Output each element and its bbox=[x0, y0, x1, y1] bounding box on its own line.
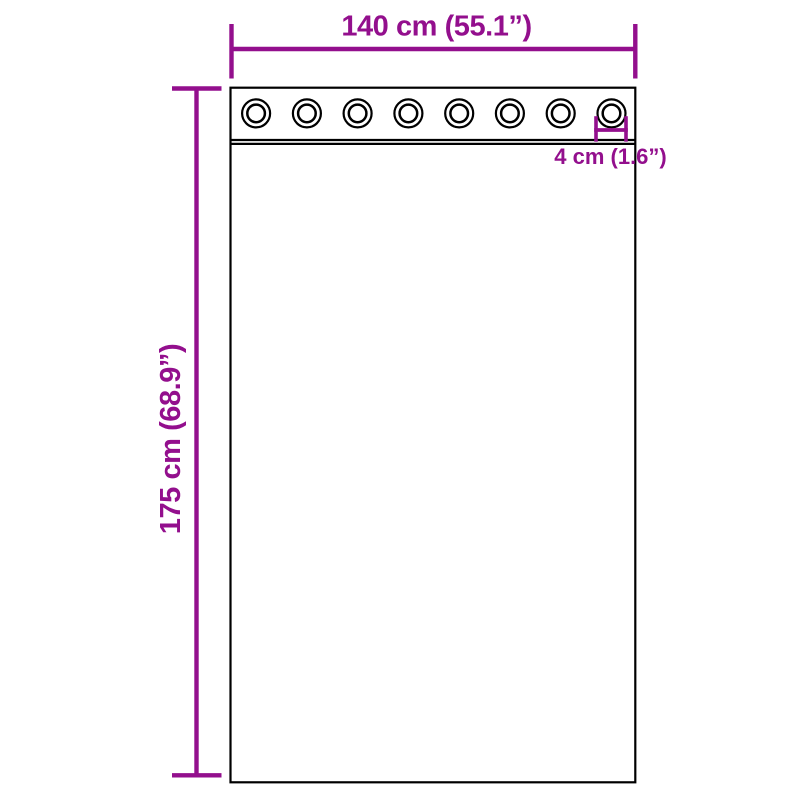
svg-text:140 cm (55.1”): 140 cm (55.1”) bbox=[341, 11, 531, 43]
svg-text:4 cm (1.6”): 4 cm (1.6”) bbox=[554, 144, 667, 169]
svg-text:175 cm (68.9”): 175 cm (68.9”) bbox=[155, 344, 187, 534]
